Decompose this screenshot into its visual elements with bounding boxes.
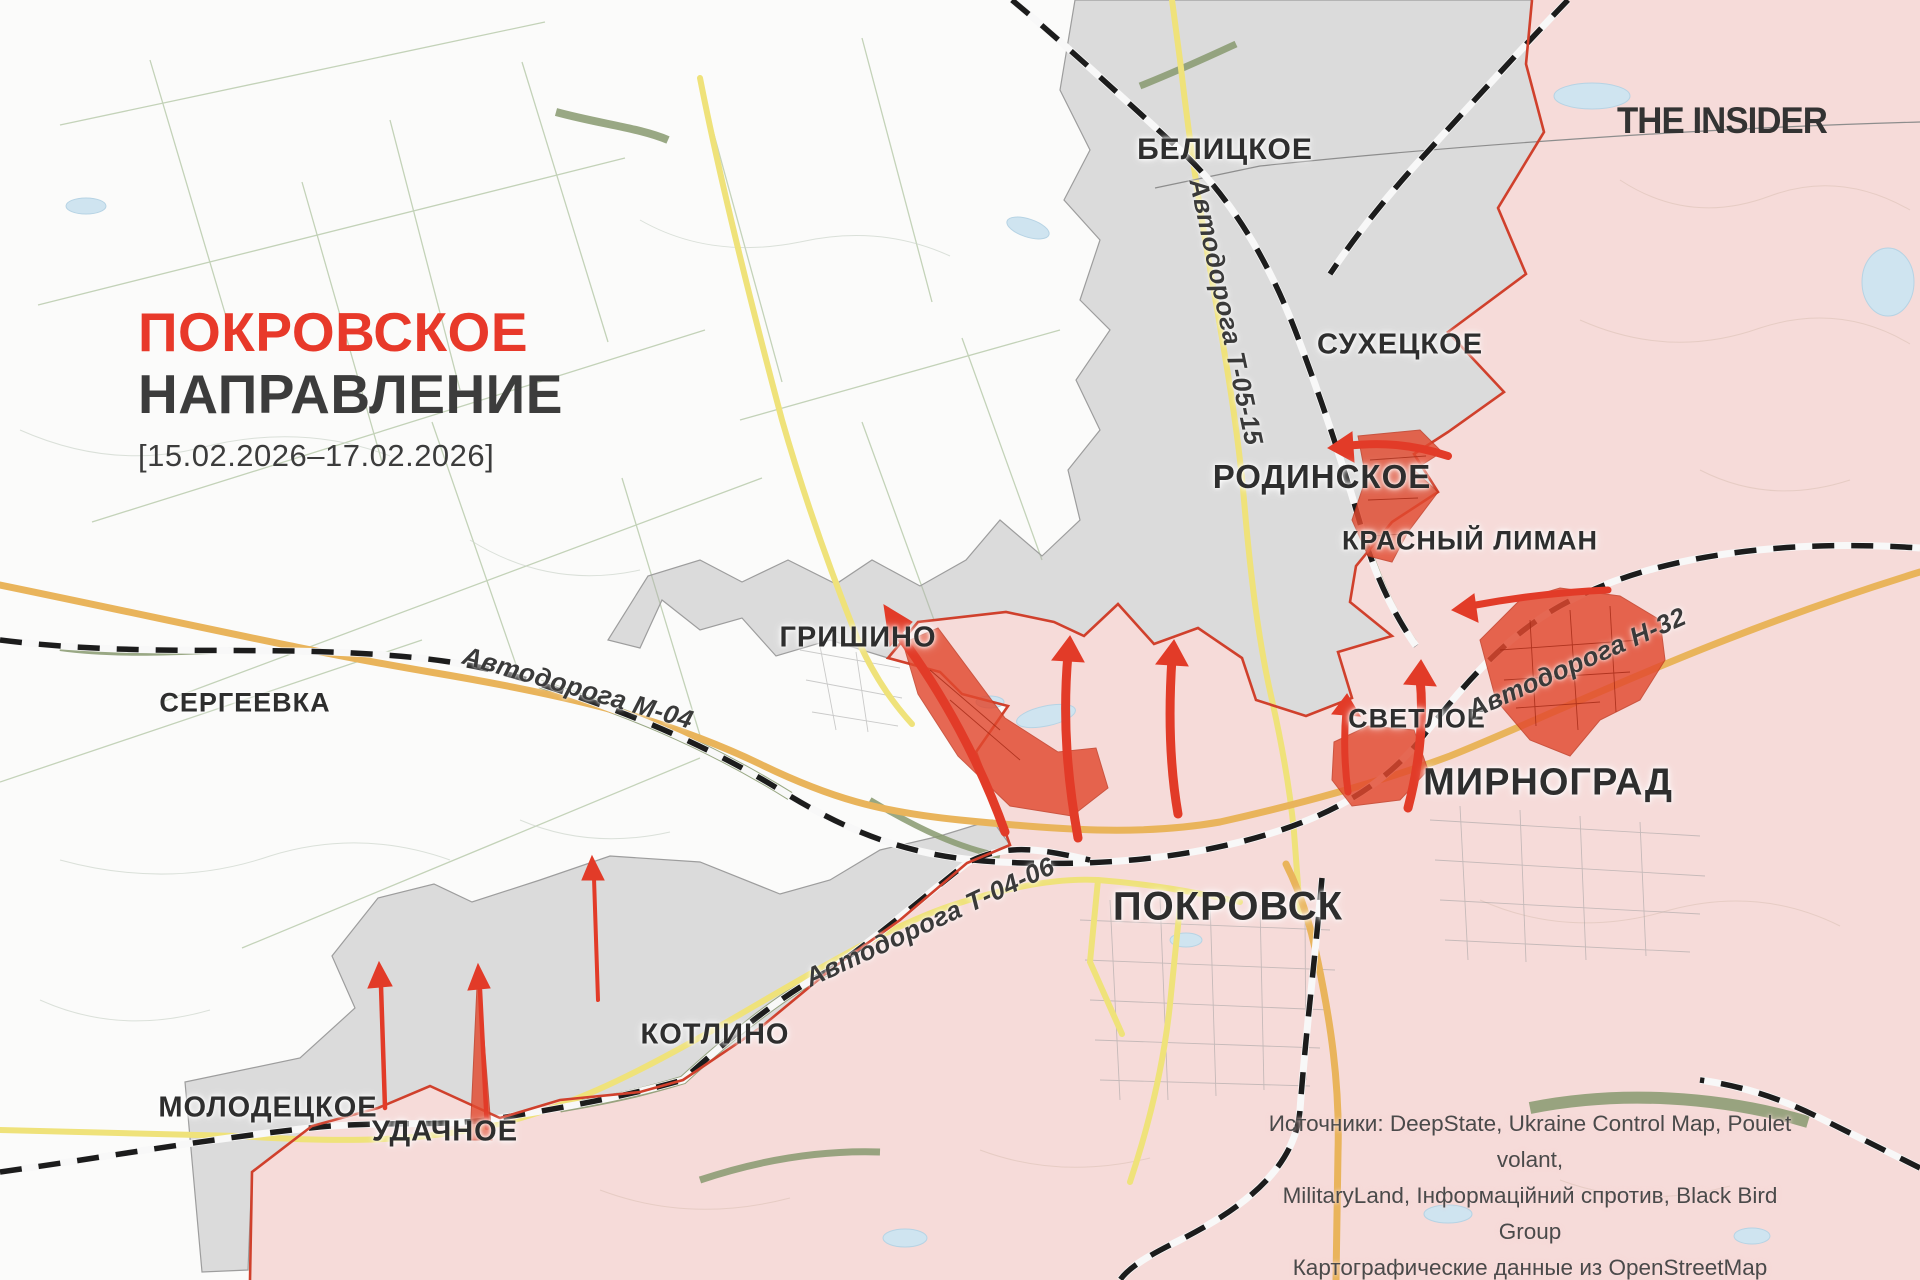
town-label-svetloe: СВЕТЛОЕ bbox=[1348, 704, 1486, 735]
sources-line-3: Картографические данные из OpenStreetMap bbox=[1250, 1250, 1810, 1280]
title-direction-name: ПОКРОВСКОЕ bbox=[138, 302, 563, 364]
the-insider-logo: THE INSIDER bbox=[1617, 100, 1827, 142]
title-block: ПОКРОВСКОЕ НАПРАВЛЕНИЕ [15.02.2026–17.02… bbox=[138, 302, 563, 474]
town-label-mirnograd: МИРНОГРАД bbox=[1423, 762, 1673, 805]
title-date-range: [15.02.2026–17.02.2026] bbox=[138, 439, 563, 474]
town-label-krasny-liman: КРАСНЫЙ ЛИМАН bbox=[1342, 526, 1598, 557]
town-label-sukhetskoe: СУХЕЦКОЕ bbox=[1317, 329, 1483, 362]
town-label-belitskoe: БЕЛИЦКОЕ bbox=[1137, 133, 1313, 167]
town-label-udachnoe: УДАЧНОЕ bbox=[372, 1116, 518, 1149]
sources-line-2: MilitaryLand, Інформаційний спротив, Bla… bbox=[1250, 1178, 1810, 1250]
title-direction-word: НАПРАВЛЕНИЕ bbox=[138, 364, 563, 426]
town-label-sergeevka: СЕРГЕЕВКА bbox=[159, 688, 330, 719]
town-label-kotlino: КОТЛИНО bbox=[641, 1019, 790, 1052]
map-canvas: ПОКРОВСКОЕ НАПРАВЛЕНИЕ [15.02.2026–17.02… bbox=[0, 0, 1920, 1280]
sources-line-1: Источники: DeepState, Ukraine Control Ma… bbox=[1250, 1106, 1810, 1178]
town-label-grishino: ГРИШИНО bbox=[779, 622, 936, 655]
sources-attribution: Источники: DeepState, Ukraine Control Ma… bbox=[1250, 1106, 1810, 1280]
town-label-pokrovsk: ПОКРОВСК bbox=[1113, 885, 1343, 930]
town-label-molodetskoe: МОЛОДЕЦКОЕ bbox=[158, 1092, 377, 1125]
town-label-rodinskoe: РОДИНСКОЕ bbox=[1213, 458, 1432, 496]
